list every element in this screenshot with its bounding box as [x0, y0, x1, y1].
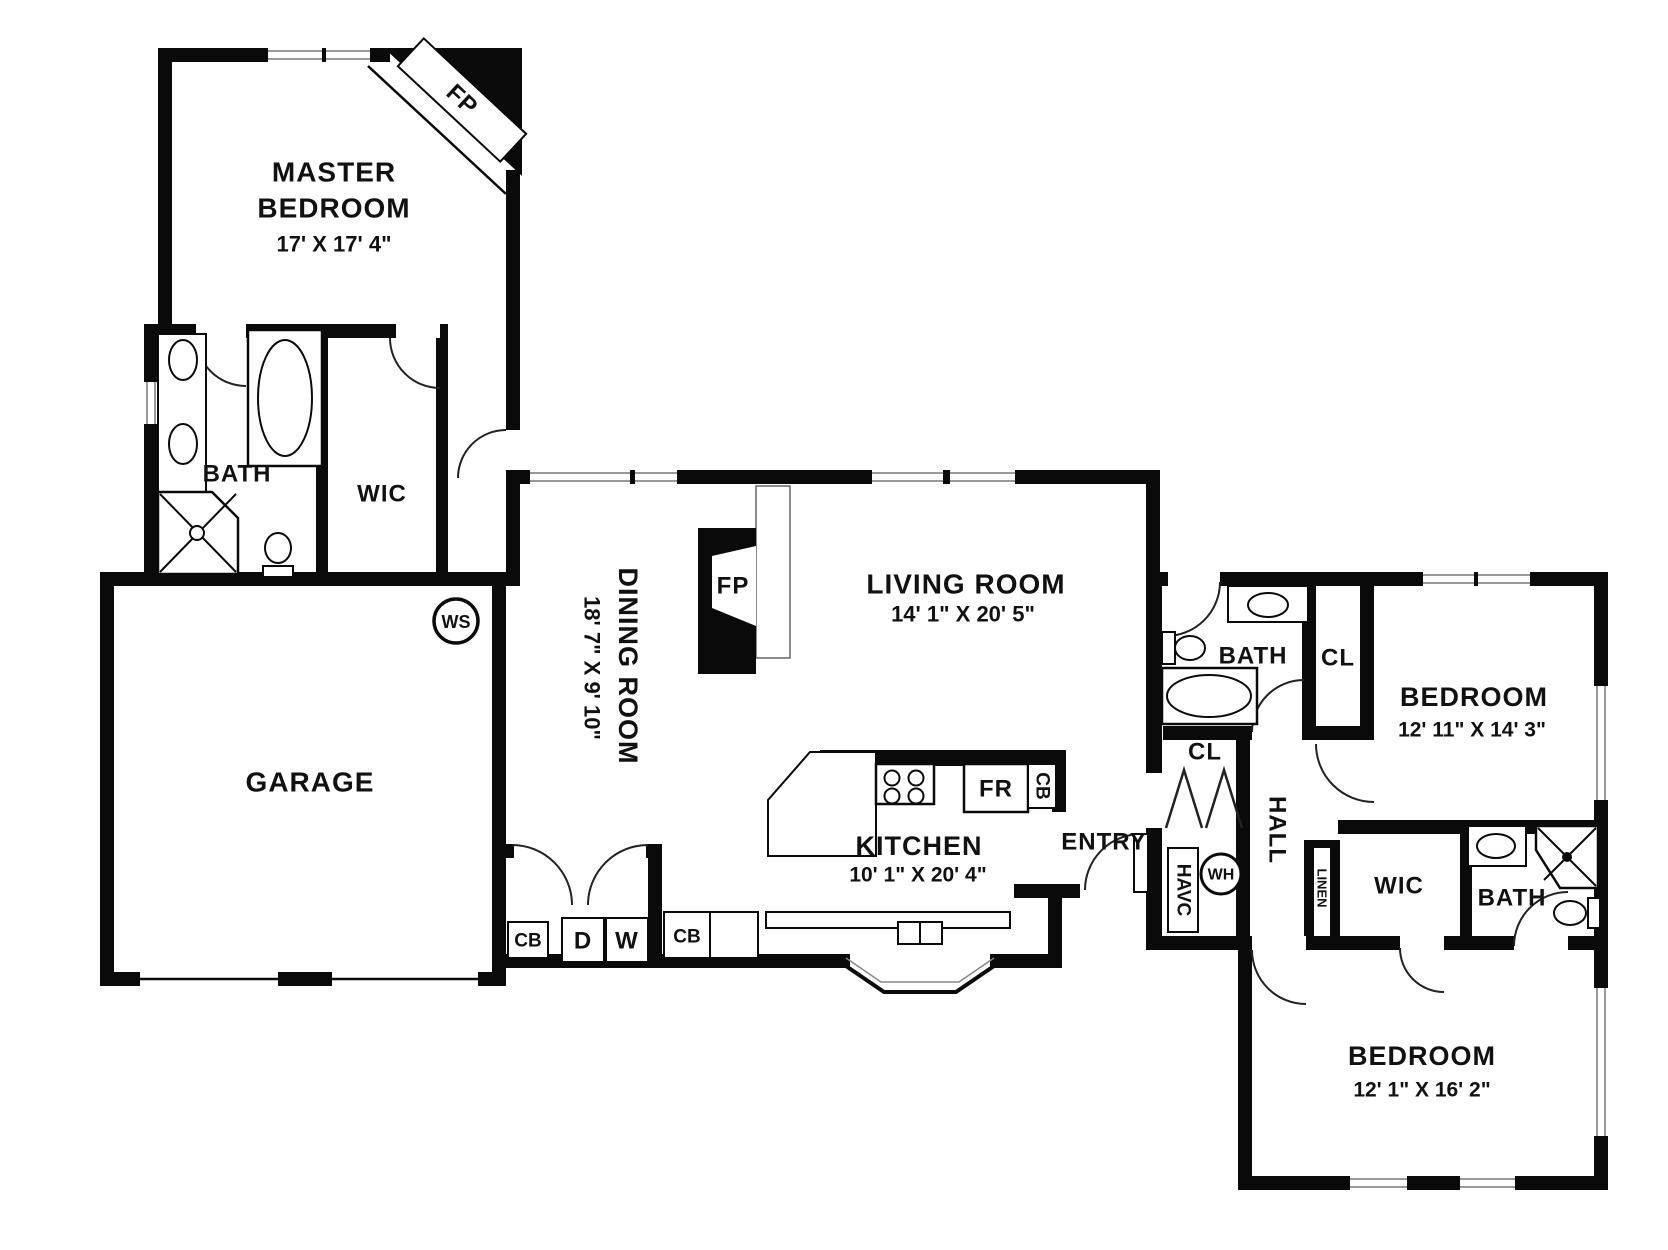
room-master-wic-label: WIC: [357, 481, 407, 508]
window: [1594, 988, 1608, 1136]
room-label: KITCHEN: [856, 831, 983, 861]
room-hall-label: HALL: [1264, 796, 1291, 864]
room-dims: 10' 1" X 20' 4": [849, 864, 986, 887]
window: [1423, 572, 1530, 586]
room-linen-label: LINEN: [1315, 869, 1330, 908]
kitchen-cabinet-label: CB: [1032, 772, 1053, 799]
room-entry-label: ENTRY: [1061, 829, 1146, 856]
sink-icon: [169, 424, 197, 464]
master-wic-door: [390, 338, 440, 388]
living-fireplace-label: FP: [717, 573, 750, 600]
bifold-door: [1166, 770, 1202, 828]
window: [635, 470, 677, 484]
room-bath2-label: BATH: [1219, 643, 1288, 670]
sink-icon: [1477, 834, 1515, 858]
bath2-hall-door: [1252, 680, 1304, 732]
washer-label: W: [615, 928, 639, 955]
laundry-fixtures: CB D W CB: [508, 912, 758, 962]
room-bedroom2: BEDROOM 12' 11" X 14' 3": [1398, 682, 1548, 742]
room-closet2-label: CL: [1321, 645, 1355, 672]
sink-icon: [169, 340, 197, 380]
room-garage-label: GARAGE: [246, 767, 375, 798]
room-dining: DINING ROOM 18' 7" X 9' 10": [580, 568, 644, 765]
laundry-cabinet-label: CB: [514, 931, 541, 952]
room-dims: 14' 1" X 20' 5": [891, 602, 1035, 627]
room-kitchen: KITCHEN 10' 1" X 20' 4": [849, 831, 986, 887]
utility-fixtures: HAVC WH: [1168, 848, 1241, 932]
window: [872, 470, 943, 484]
bedroom2-door: [1316, 744, 1374, 802]
floor-plan-page: FP FP FR CB CB D W CB: [0, 0, 1668, 1250]
laundry-door-right: [588, 845, 648, 905]
kitchen-counter: [766, 912, 1010, 928]
room-living: LIVING ROOM 14' 1" X 20' 5": [866, 569, 1065, 627]
room-dims: 18' 7" X 9' 10": [580, 596, 605, 740]
window: [530, 470, 630, 484]
cabinet-icon: [710, 912, 758, 958]
room-label: DINING ROOM: [613, 568, 643, 765]
hearth: [756, 486, 790, 658]
room-bedroom3: BEDROOM 12' 1" X 16' 2": [1348, 1041, 1496, 1102]
room-label: BEDROOM: [257, 193, 410, 224]
water-softener-label: WS: [442, 612, 471, 632]
window: [268, 48, 322, 62]
fridge-label: FR: [979, 776, 1013, 803]
living-fireplace: FP: [698, 486, 790, 674]
window: [326, 48, 370, 62]
water-softener: WS: [434, 599, 478, 643]
sink-icon: [1248, 593, 1288, 617]
master-bath-fixtures: [158, 330, 322, 577]
toilet-icon: [1588, 898, 1600, 928]
toilet-icon: [1162, 632, 1175, 664]
room-label: MASTER: [272, 157, 396, 188]
window: [1350, 1176, 1407, 1190]
toilet-icon: [265, 533, 291, 563]
room-label: BEDROOM: [1348, 1041, 1496, 1071]
room-master-bedroom: MASTER BEDROOM 17' X 17' 4": [257, 157, 410, 257]
laundry-cabinet-label: CB: [673, 927, 700, 948]
hvac-label: HAVC: [1173, 864, 1194, 917]
room-hall-closet-label: CL: [1188, 739, 1222, 766]
room-master-bath-label: BATH: [203, 461, 272, 488]
sink-icon: [898, 922, 920, 944]
window: [1594, 686, 1608, 800]
sink-icon: [920, 922, 942, 944]
window: [950, 470, 1015, 484]
room-label: LIVING ROOM: [866, 569, 1065, 600]
window: [1460, 1176, 1515, 1190]
water-heater-label: WH: [1208, 867, 1235, 884]
laundry-door-left: [512, 845, 572, 905]
room-bath3-label: BATH: [1478, 885, 1547, 912]
room-wic2-label: WIC: [1374, 873, 1424, 900]
dryer-label: D: [574, 928, 592, 955]
master-suite-door: [458, 430, 506, 478]
bedroom3-door: [1252, 950, 1306, 1004]
bath3-fixtures: [1468, 826, 1600, 928]
room-dims: 12' 11" X 14' 3": [1398, 719, 1546, 742]
room-label: BEDROOM: [1400, 682, 1548, 712]
floor-plan-svg: FP FP FR CB CB D W CB: [0, 0, 1668, 1250]
room-dims: 12' 1" X 16' 2": [1353, 1079, 1490, 1102]
room-labels: MASTER BEDROOM 17' X 17' 4" BATH WIC GAR…: [203, 157, 1548, 1102]
window: [144, 382, 158, 424]
bay-window: [846, 958, 994, 992]
wic2-door: [1400, 948, 1444, 992]
room-dims: 17' X 17' 4": [276, 232, 391, 257]
bath2-door: [1166, 582, 1220, 636]
